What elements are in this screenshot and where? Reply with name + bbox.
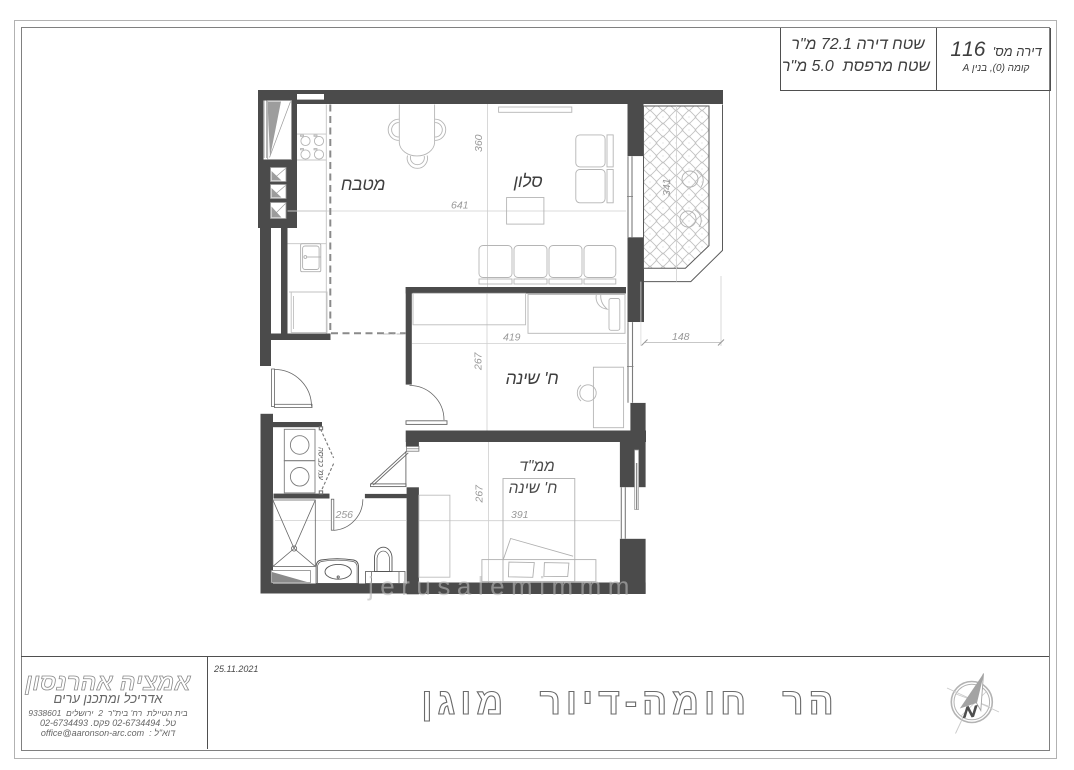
svg-text:341: 341 xyxy=(661,178,673,196)
svg-text:419: 419 xyxy=(503,332,521,344)
svg-text:391: 391 xyxy=(511,509,529,521)
svg-text:267: 267 xyxy=(473,351,485,371)
svg-text:641: 641 xyxy=(451,200,469,212)
svg-text:267: 267 xyxy=(474,484,486,504)
svg-text:360: 360 xyxy=(473,134,485,152)
svg-text:148: 148 xyxy=(672,331,690,343)
svg-text:256: 256 xyxy=(335,509,354,521)
